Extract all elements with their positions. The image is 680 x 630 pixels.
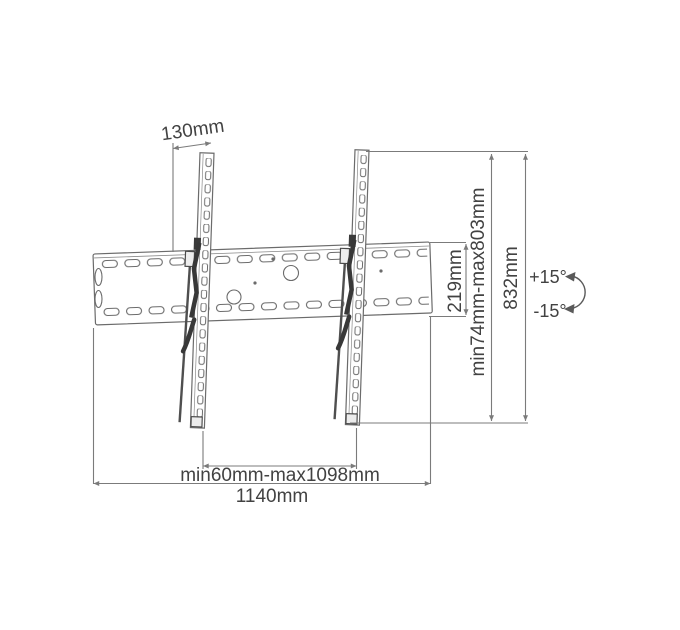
plate-edge-slot-lower (95, 291, 102, 308)
wall-plate-slot-rows (97, 242, 429, 325)
diagram-canvas: 130mm 219mm min74mm-max803mm 832mm +15° … (0, 0, 680, 630)
plate-pilot-dot-1 (253, 281, 256, 284)
wall-plate (93, 242, 432, 325)
arm-end-cap (346, 414, 357, 424)
plate-hole-right (284, 266, 299, 281)
label-130mm: 130mm (160, 116, 226, 146)
plate-hole-left (227, 290, 241, 304)
label-tilt-up: +15° (529, 267, 567, 287)
dim-130-line (173, 143, 211, 149)
plate-pilot-dot-2 (271, 257, 274, 260)
label-arm-spacing: min60mm-max1098mm (180, 465, 380, 486)
tilt-indicator (564, 272, 585, 314)
plate-edge-slot-upper (95, 269, 102, 286)
arm-end-cap (191, 417, 202, 427)
label-219mm: 219mm (445, 249, 466, 312)
label-832mm: 832mm (501, 246, 522, 309)
plate-pilot-dot-3 (379, 269, 382, 272)
label-tilt-down: -15° (533, 301, 566, 321)
label-hole-range: min74mm-max803mm (468, 188, 489, 377)
wall-mount-dimension-drawing: 130mm 219mm min74mm-max803mm 832mm +15° … (0, 0, 680, 630)
label-1140mm: 1140mm (236, 486, 309, 507)
